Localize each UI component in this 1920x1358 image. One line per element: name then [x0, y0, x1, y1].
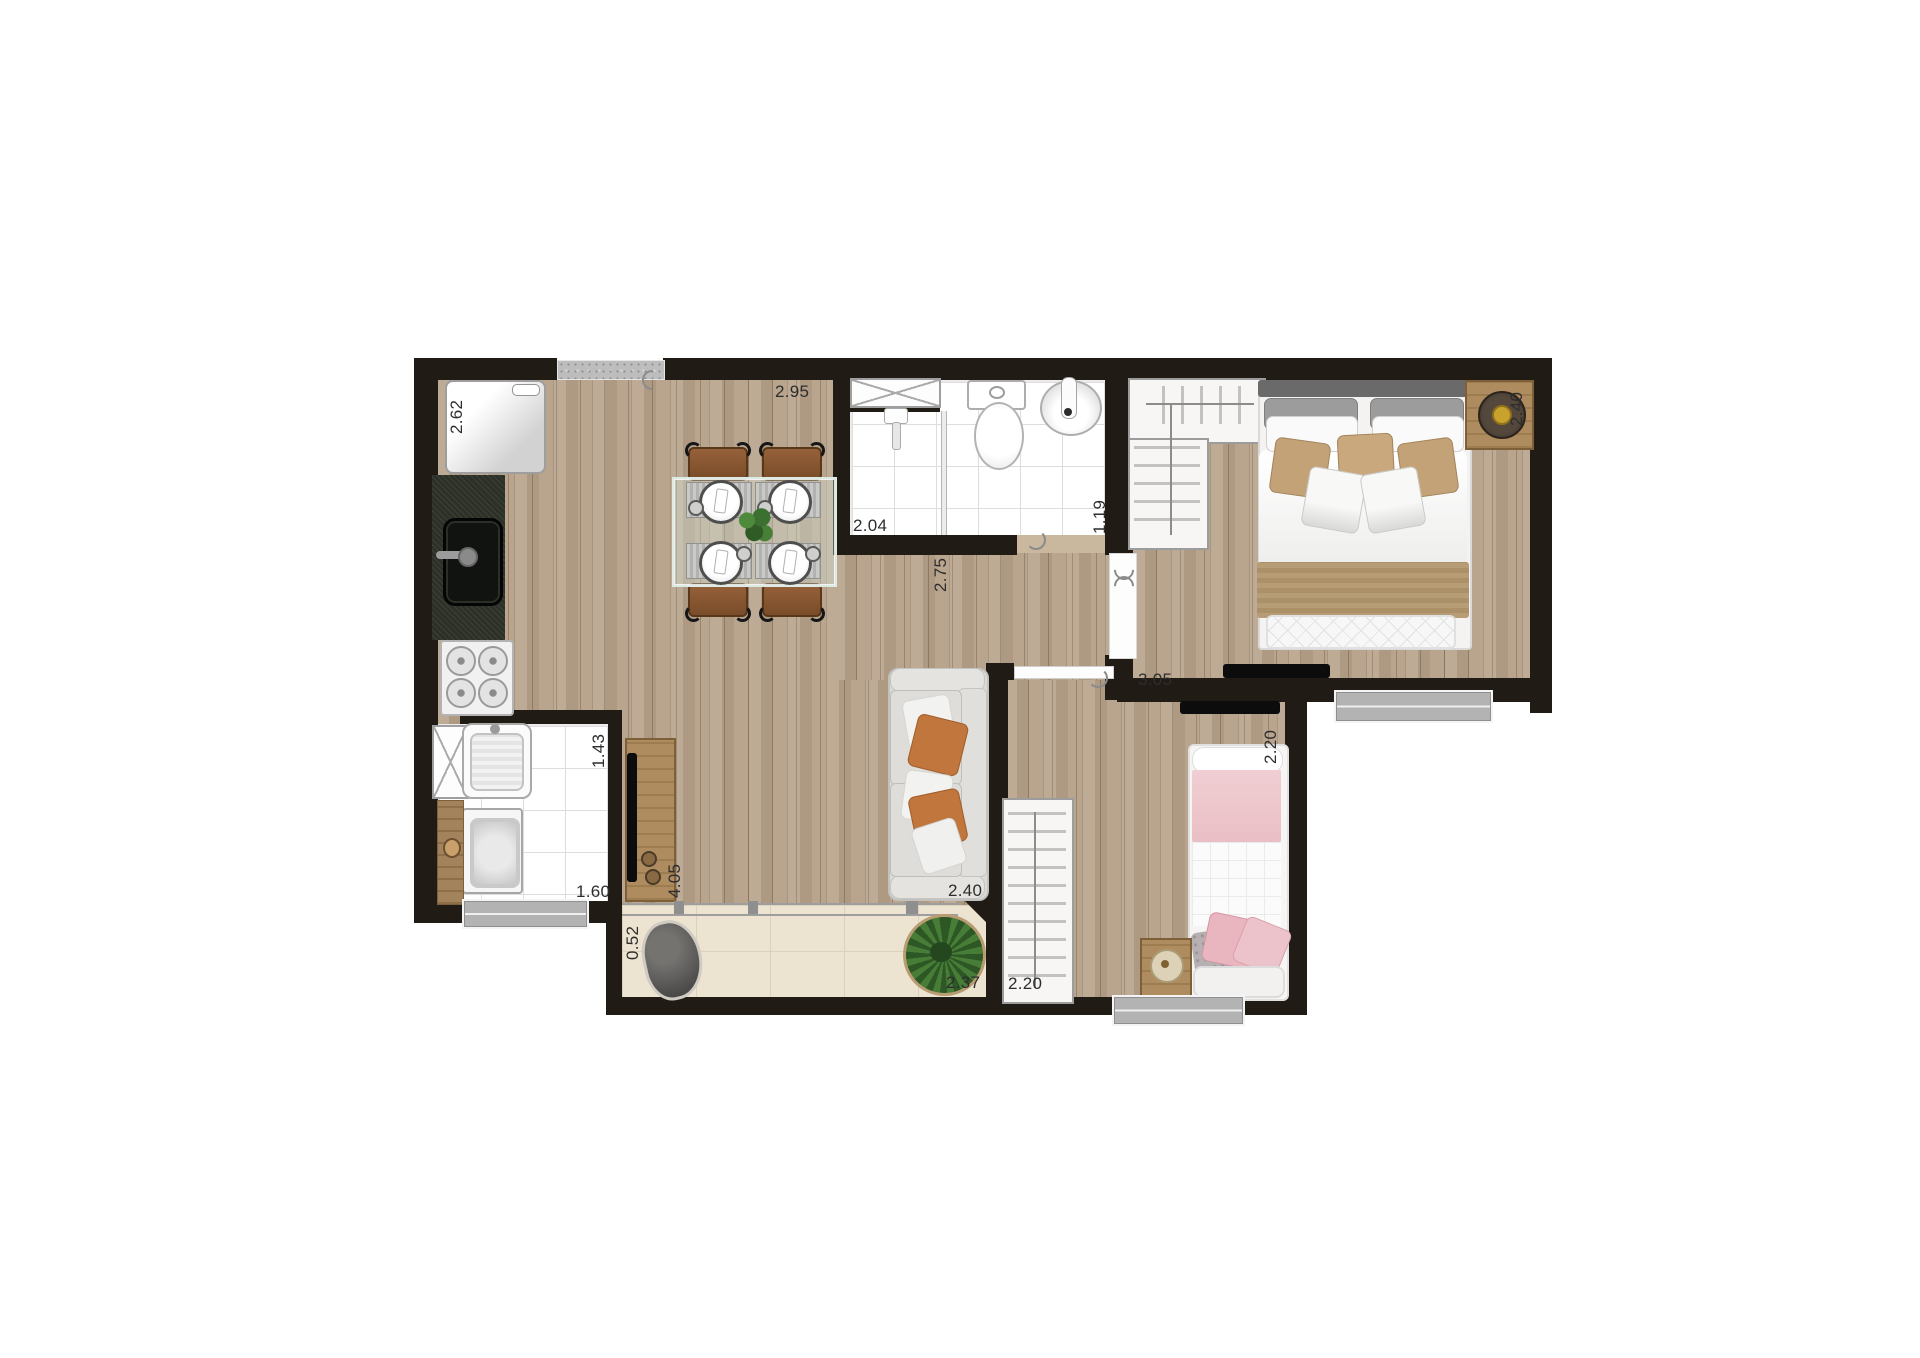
cup-icon	[805, 546, 821, 562]
bedroom1-tv-icon	[1223, 664, 1330, 678]
dimension-label: 1.19	[1091, 492, 1111, 534]
decor-icon	[641, 851, 657, 867]
laundry-window-icon	[462, 899, 589, 929]
dimension-label: 2.04	[853, 517, 887, 534]
decor-icon	[645, 869, 661, 885]
foot-quilt	[1266, 615, 1456, 649]
hangers-icon	[1146, 386, 1254, 424]
dimension-label: 3.05	[1138, 671, 1172, 688]
balcony-rail-post	[906, 901, 918, 914]
dimension-label: 2.62	[448, 388, 468, 434]
dining-chair-icon	[688, 447, 748, 481]
dimension-label: 2.37	[946, 974, 980, 991]
stove-burner-icon	[478, 678, 508, 708]
bedroom2-window-icon	[1112, 995, 1245, 1026]
dining-chair-icon	[688, 583, 748, 617]
dimension-label: 2.40	[1508, 382, 1528, 426]
kitchen-faucet-icon	[458, 547, 478, 567]
bathroom-window-icon	[850, 378, 941, 408]
bedroom2-tv-icon	[1180, 701, 1280, 714]
table-plant-icon	[735, 505, 775, 549]
dimension-label: 2.95	[775, 383, 809, 400]
stove-burner-icon	[446, 678, 476, 708]
dimension-label: 2.20	[1008, 975, 1042, 992]
shower-head-icon	[892, 422, 901, 450]
hanger-rail	[1034, 812, 1036, 988]
hallway-floor	[833, 553, 1133, 680]
glass-partition	[941, 411, 947, 535]
tv-icon	[627, 753, 637, 882]
wall	[986, 663, 1014, 680]
floor-plan: 2.62 2.95 2.04 1.19 2.75 2.40 3.05 1.43 …	[0, 0, 1920, 1358]
bed-throw	[1257, 562, 1469, 618]
dimension-label: 1.43	[590, 726, 610, 768]
decor-icon	[443, 838, 461, 858]
balcony-plant-icon	[930, 942, 952, 962]
utility-sink-icon	[470, 733, 524, 791]
stove-burner-icon	[478, 646, 508, 676]
toilet-bowl-icon	[974, 402, 1024, 470]
hangers-icon	[1134, 440, 1200, 536]
hangers-icon	[1008, 810, 1066, 992]
wall	[608, 724, 622, 903]
stove-burner-icon	[446, 646, 476, 676]
fridge-handle-icon	[512, 384, 540, 396]
dimension-label: 0.52	[624, 920, 642, 960]
dimension-label: 4.05	[666, 854, 686, 898]
cup-icon	[688, 500, 704, 516]
washing-machine-door-icon	[470, 818, 520, 888]
dimension-label: 1.60	[576, 883, 610, 900]
hanger-rail	[1170, 403, 1172, 535]
pillow	[1359, 465, 1427, 534]
bedroom2-door-handle-icon	[1088, 668, 1108, 688]
dining-chair-icon	[762, 583, 822, 617]
headboard	[1193, 966, 1285, 998]
headboard	[1258, 380, 1468, 397]
pink-blanket	[1192, 770, 1281, 842]
wall	[414, 358, 438, 923]
dining-chair-icon	[762, 447, 822, 481]
toilet-button-icon	[989, 386, 1005, 399]
bedroom1-window-icon	[1334, 690, 1493, 723]
utility-faucet-icon	[490, 724, 500, 734]
bathroom-faucet-icon	[1064, 408, 1072, 416]
balcony-rail-post	[674, 901, 684, 914]
balcony-rail-post	[748, 901, 758, 914]
pillow	[1300, 465, 1368, 534]
dimension-label: 2.40	[948, 882, 982, 899]
hanger-rail	[1146, 403, 1254, 405]
dimension-label: 2.20	[1262, 720, 1282, 764]
bed-sheet	[1192, 842, 1281, 926]
dimension-label: 2.75	[932, 550, 952, 592]
bathroom-door-handle-icon	[1026, 530, 1046, 550]
wall	[833, 535, 1017, 555]
lamp-icon	[1161, 960, 1169, 968]
